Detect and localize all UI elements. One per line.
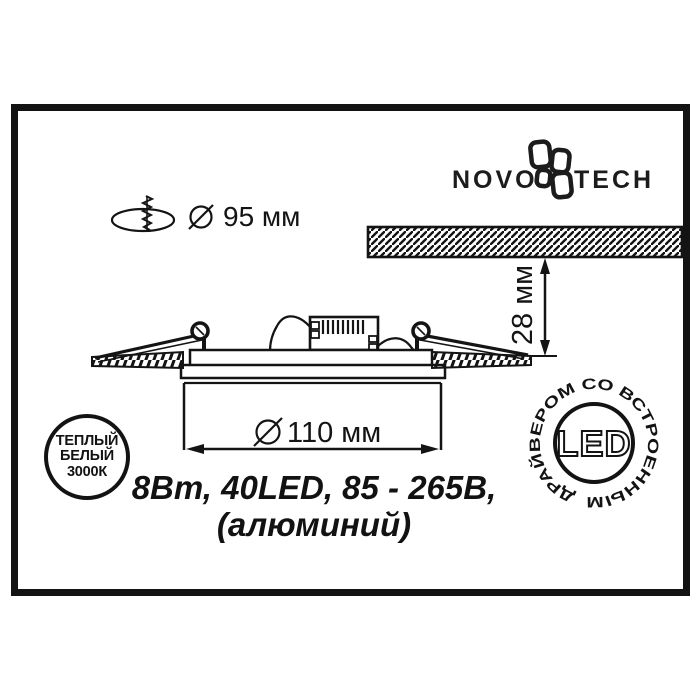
warm-white-badge: ТЕПЛЫЙ БЕЛЫЙ 3000К: [44, 414, 130, 500]
recess-depth-label: 28 мм: [507, 250, 539, 360]
diameter-symbol-95: [189, 205, 213, 229]
brand-name-right: TECH: [574, 166, 654, 195]
technical-drawing: ДРАЙВЕРОМ СО ВСТРОЕННЫМ LED: [0, 0, 700, 700]
warm-badge-line-1: ТЕПЛЫЙ: [56, 434, 119, 450]
led-badge: ДРАЙВЕРОМ СО ВСТРОЕННЫМ LED: [527, 375, 662, 510]
spec-line-1: 8Вт, 40LED, 85 - 265В,: [119, 469, 509, 507]
wire-left: [270, 316, 311, 351]
spec-line-2: (алюминий): [119, 506, 509, 544]
led-badge-center-text: LED: [557, 423, 632, 464]
cutout-diameter-label: 95 мм: [223, 201, 300, 233]
diameter-symbol-110: [254, 418, 282, 446]
driver-box: [310, 317, 378, 350]
cutout-hole-icon: [112, 196, 174, 231]
warm-badge-line-2: БЕЛЫЙ: [60, 449, 114, 465]
fixture-diameter-label: 110 мм: [287, 417, 381, 450]
brand-name-left: NOVO: [452, 166, 538, 195]
spec-sheet: ДРАЙВЕРОМ СО ВСТРОЕННЫМ LED NOVO TECH 95…: [0, 0, 700, 700]
warm-badge-line-3: 3000К: [67, 465, 107, 481]
